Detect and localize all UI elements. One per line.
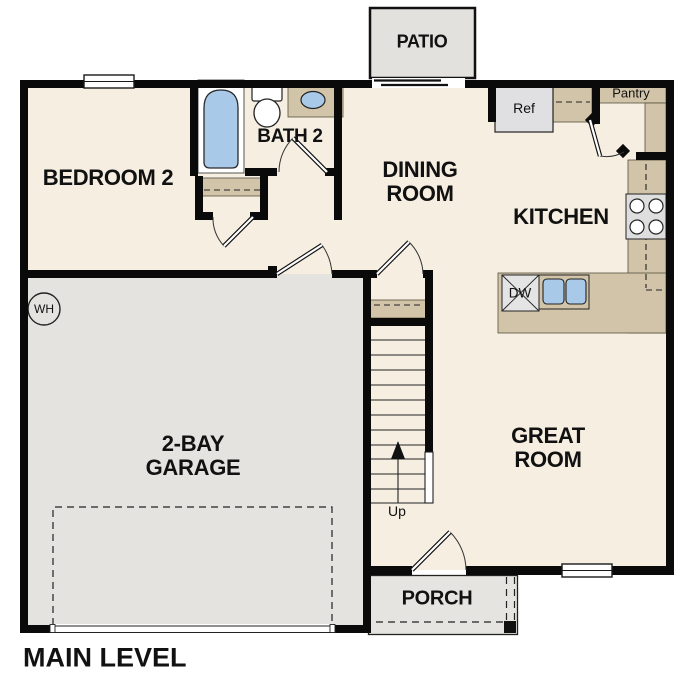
garage-door-end [330,625,335,633]
garage-label-line2: GARAGE [146,455,241,481]
dining-label-line1: DINING [382,157,457,183]
burner-icon [649,220,663,234]
bath2-label: BATH 2 [257,126,322,148]
burner-icon [630,199,644,213]
dining-label-line2: ROOM [386,181,453,207]
toilet-bowl-icon [254,99,280,127]
sink-basin-right [566,279,586,304]
plan-title: MAIN LEVEL [23,643,187,674]
garage-label-line1: 2-BAY [162,431,225,457]
garage-door [50,624,335,634]
burner-icon [630,220,644,234]
porch-label: PORCH [402,588,473,611]
kitchen-label: KITCHEN [513,204,609,230]
greatroom-label-line2: ROOM [514,447,581,473]
greatroom-label-line1: GREAT [511,423,585,449]
floor-plan: PATIO BEDROOM 2 BATH 2 DINING ROOM KITCH… [0,0,687,687]
dishwasher-label: DW [509,286,532,301]
refrigerator-label: Ref [513,100,535,116]
garage-door-end [50,625,55,633]
pantry-shelf-right [645,103,666,158]
patio-label: PATIO [397,32,448,53]
porch-post [504,621,516,633]
water-heater-label: WH [34,302,54,316]
pantry-label: Pantry [612,86,650,101]
bedroom-closet-shelf [200,178,267,196]
vanity-sink-icon [301,92,325,109]
bedroom2-label: BEDROOM 2 [43,165,174,191]
stair-railing [425,452,433,503]
sink-basin-left [543,279,564,304]
floor-plan-drawing [0,0,687,687]
bathtub-icon [204,90,238,168]
stair-closet-shelf [370,300,427,318]
stairs-up-label: Up [388,503,406,519]
burner-icon [649,199,663,213]
upper-cabinet [553,86,592,122]
